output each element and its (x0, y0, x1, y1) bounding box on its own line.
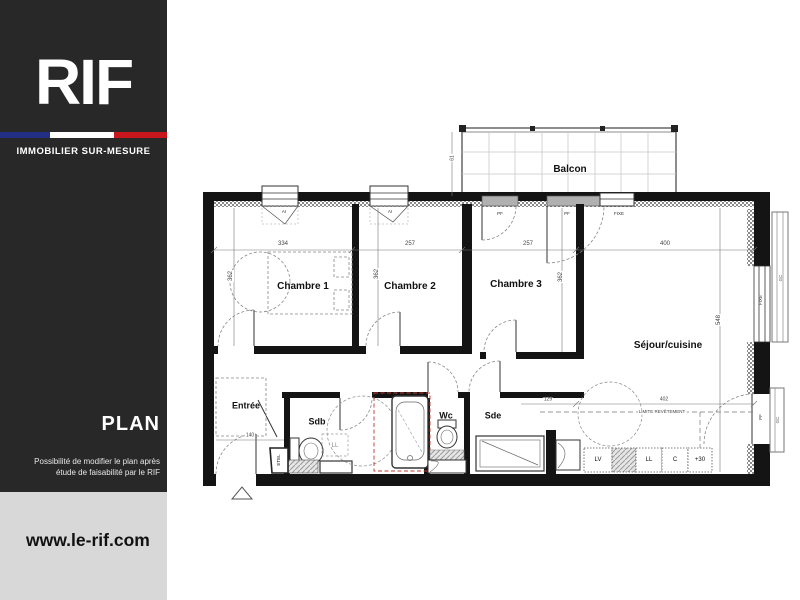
room-label-chambre-3: Chambre 3 (490, 280, 542, 290)
room-label-wc: Wc (439, 412, 453, 421)
anno-limite-revetement: LIMITE REVÊTEMENT (638, 410, 687, 415)
room-label-balcon: Balcon (553, 165, 586, 175)
door-sill-chambre3 (482, 196, 518, 206)
anno-gc-rail-2: GC (776, 417, 781, 424)
anno-pf-sejour: PF (564, 212, 570, 217)
dim-402: 402 (659, 398, 669, 403)
kitchen-sink (612, 448, 636, 472)
window-chambre1 (262, 186, 298, 206)
sink-counter-sdb (288, 460, 318, 473)
anno-gc-rail-1: GC (779, 275, 784, 282)
room-label-chambre-2: Chambre 2 (384, 282, 436, 292)
room-label-entree: Entrée (232, 402, 260, 411)
balcony-post (600, 126, 605, 131)
anno-ai-window-2: AI (388, 210, 392, 215)
anno-c: C (673, 457, 677, 463)
balcony-deck (459, 125, 678, 196)
dim-400: 400 (659, 241, 671, 247)
turning-circle-sdb (327, 396, 397, 466)
dim-362-ch1: 362 (228, 270, 234, 282)
entrance-marker (232, 487, 252, 499)
anno-fixe: FIXE (614, 212, 624, 217)
anno-lv: LV (595, 457, 602, 463)
dim-334: 334 (277, 241, 289, 247)
dim-548: 548 (716, 314, 722, 326)
page: RIF IMMOBILIER SUR-MESURE PLAN Possibili… (0, 0, 800, 600)
dim-257-ch2: 257 (404, 241, 416, 247)
dim-129: 129 (543, 398, 553, 403)
dim-61: 61 (451, 154, 456, 162)
anno-etel: ETEL (277, 454, 282, 465)
window-chambre2 (370, 186, 408, 206)
windows (262, 186, 770, 342)
room-label-sdb: Sdb (309, 418, 326, 427)
anno-ll-kitchen: LL (646, 457, 653, 463)
dim-362-ch3: 362 (558, 271, 564, 283)
balcony-post (459, 125, 466, 132)
wc-mat (430, 450, 464, 460)
anno-plus30: +30 (695, 457, 705, 463)
anno-ll-sdb: LL (332, 443, 339, 449)
anno-fixe-right: FIXE (759, 295, 764, 305)
room-label-chambre-1: Chambre 1 (277, 282, 329, 292)
window-fixe (600, 193, 634, 206)
balcony-post (671, 125, 678, 132)
shower-tray (476, 436, 544, 471)
bathroom-fixtures (270, 393, 544, 473)
dim-257-ch3: 257 (522, 241, 534, 247)
floor-plan-drawing (0, 0, 800, 600)
door-sill-sejour (547, 196, 600, 206)
anno-pf-right: PF (759, 414, 764, 420)
toilet-bowl-wc (437, 426, 457, 448)
room-label-sde: Sde (485, 412, 502, 421)
door-leaf-sdb (258, 400, 277, 437)
wc-cabinet (428, 460, 466, 473)
anno-pf-ch3: PF (497, 212, 503, 217)
dim-362-ch2: 362 (374, 268, 380, 280)
dim-140: 140 (245, 434, 255, 439)
balcony-post (530, 126, 535, 131)
turning-circle-sejour (578, 382, 642, 446)
anno-ai-window-1: AI (282, 210, 286, 215)
room-label-sejour-cuisine: Séjour/cuisine (634, 341, 702, 351)
